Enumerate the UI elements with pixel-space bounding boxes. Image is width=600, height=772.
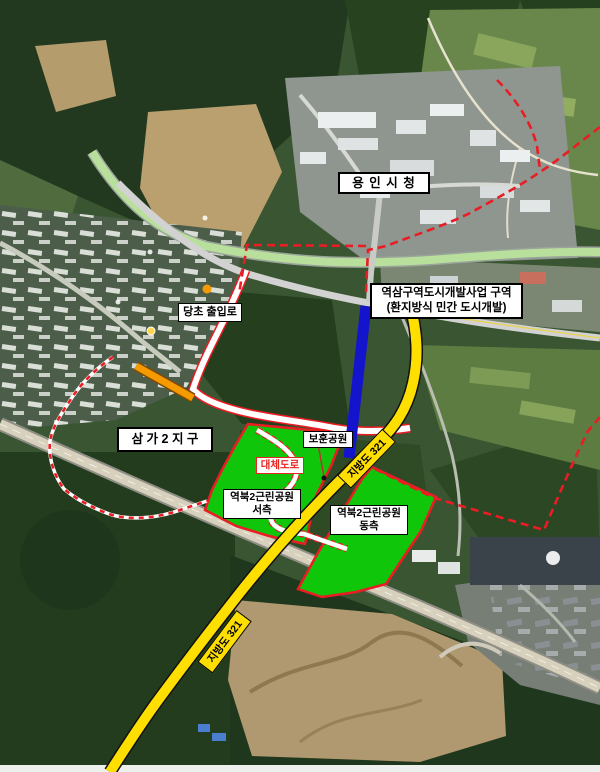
dev-zone-line1: 역삼구역도시개발사업 구역 [381,286,511,301]
label-bohun-park: 보훈공원 [303,431,353,448]
east-park-side: 동측 [359,520,378,533]
east-park-name: 역북2근린공원 [337,507,401,520]
label-dev-zone: 역삼구역도시개발사업 구역 (환지방식 민간 도시개발) [370,283,523,319]
label-original-access-road: 당초 출입로 [178,303,242,322]
map-canvas: 용 인 시 청 역삼구역도시개발사업 구역 (환지방식 민간 도시개발) 당초 … [0,0,600,772]
dev-zone-line2: (환지방식 민간 도시개발) [387,301,507,316]
label-alternative-road: 대체도로 [256,457,304,474]
point-marker [322,476,327,481]
label-city-hall: 용 인 시 청 [338,172,430,194]
poi-marker [147,327,155,335]
bohun-park-text: 보훈공원 [309,433,348,446]
junction-marker [203,285,211,293]
label-samga2-district: 삼 가 2 지 구 [117,427,213,452]
city-hall-text: 용 인 시 청 [352,176,415,191]
west-park-name: 역북2근린공원 [230,491,294,504]
label-east-park: 역북2근린공원 동측 [330,505,408,535]
label-west-park: 역북2근린공원 서측 [223,489,301,519]
samga2-text: 삼 가 2 지 구 [132,432,199,447]
annotation-overlay [0,0,600,772]
original-access-text: 당초 출입로 [183,306,237,319]
orange-road-segment [136,366,193,398]
west-park-side: 서측 [252,504,271,517]
alternative-road-text: 대체도로 [261,459,300,472]
